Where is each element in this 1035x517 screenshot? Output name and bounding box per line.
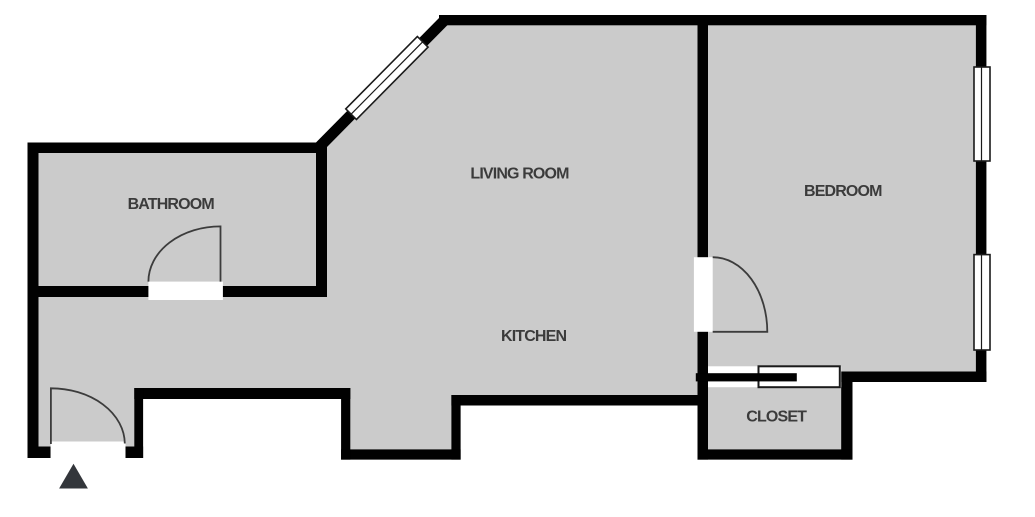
svg-text:CLOSET: CLOSET [746,409,807,426]
svg-text:BEDROOM: BEDROOM [804,183,882,200]
svg-text:KITCHEN: KITCHEN [501,328,566,345]
svg-text:LIVING ROOM: LIVING ROOM [470,166,569,183]
svg-text:BATHROOM: BATHROOM [128,196,215,213]
